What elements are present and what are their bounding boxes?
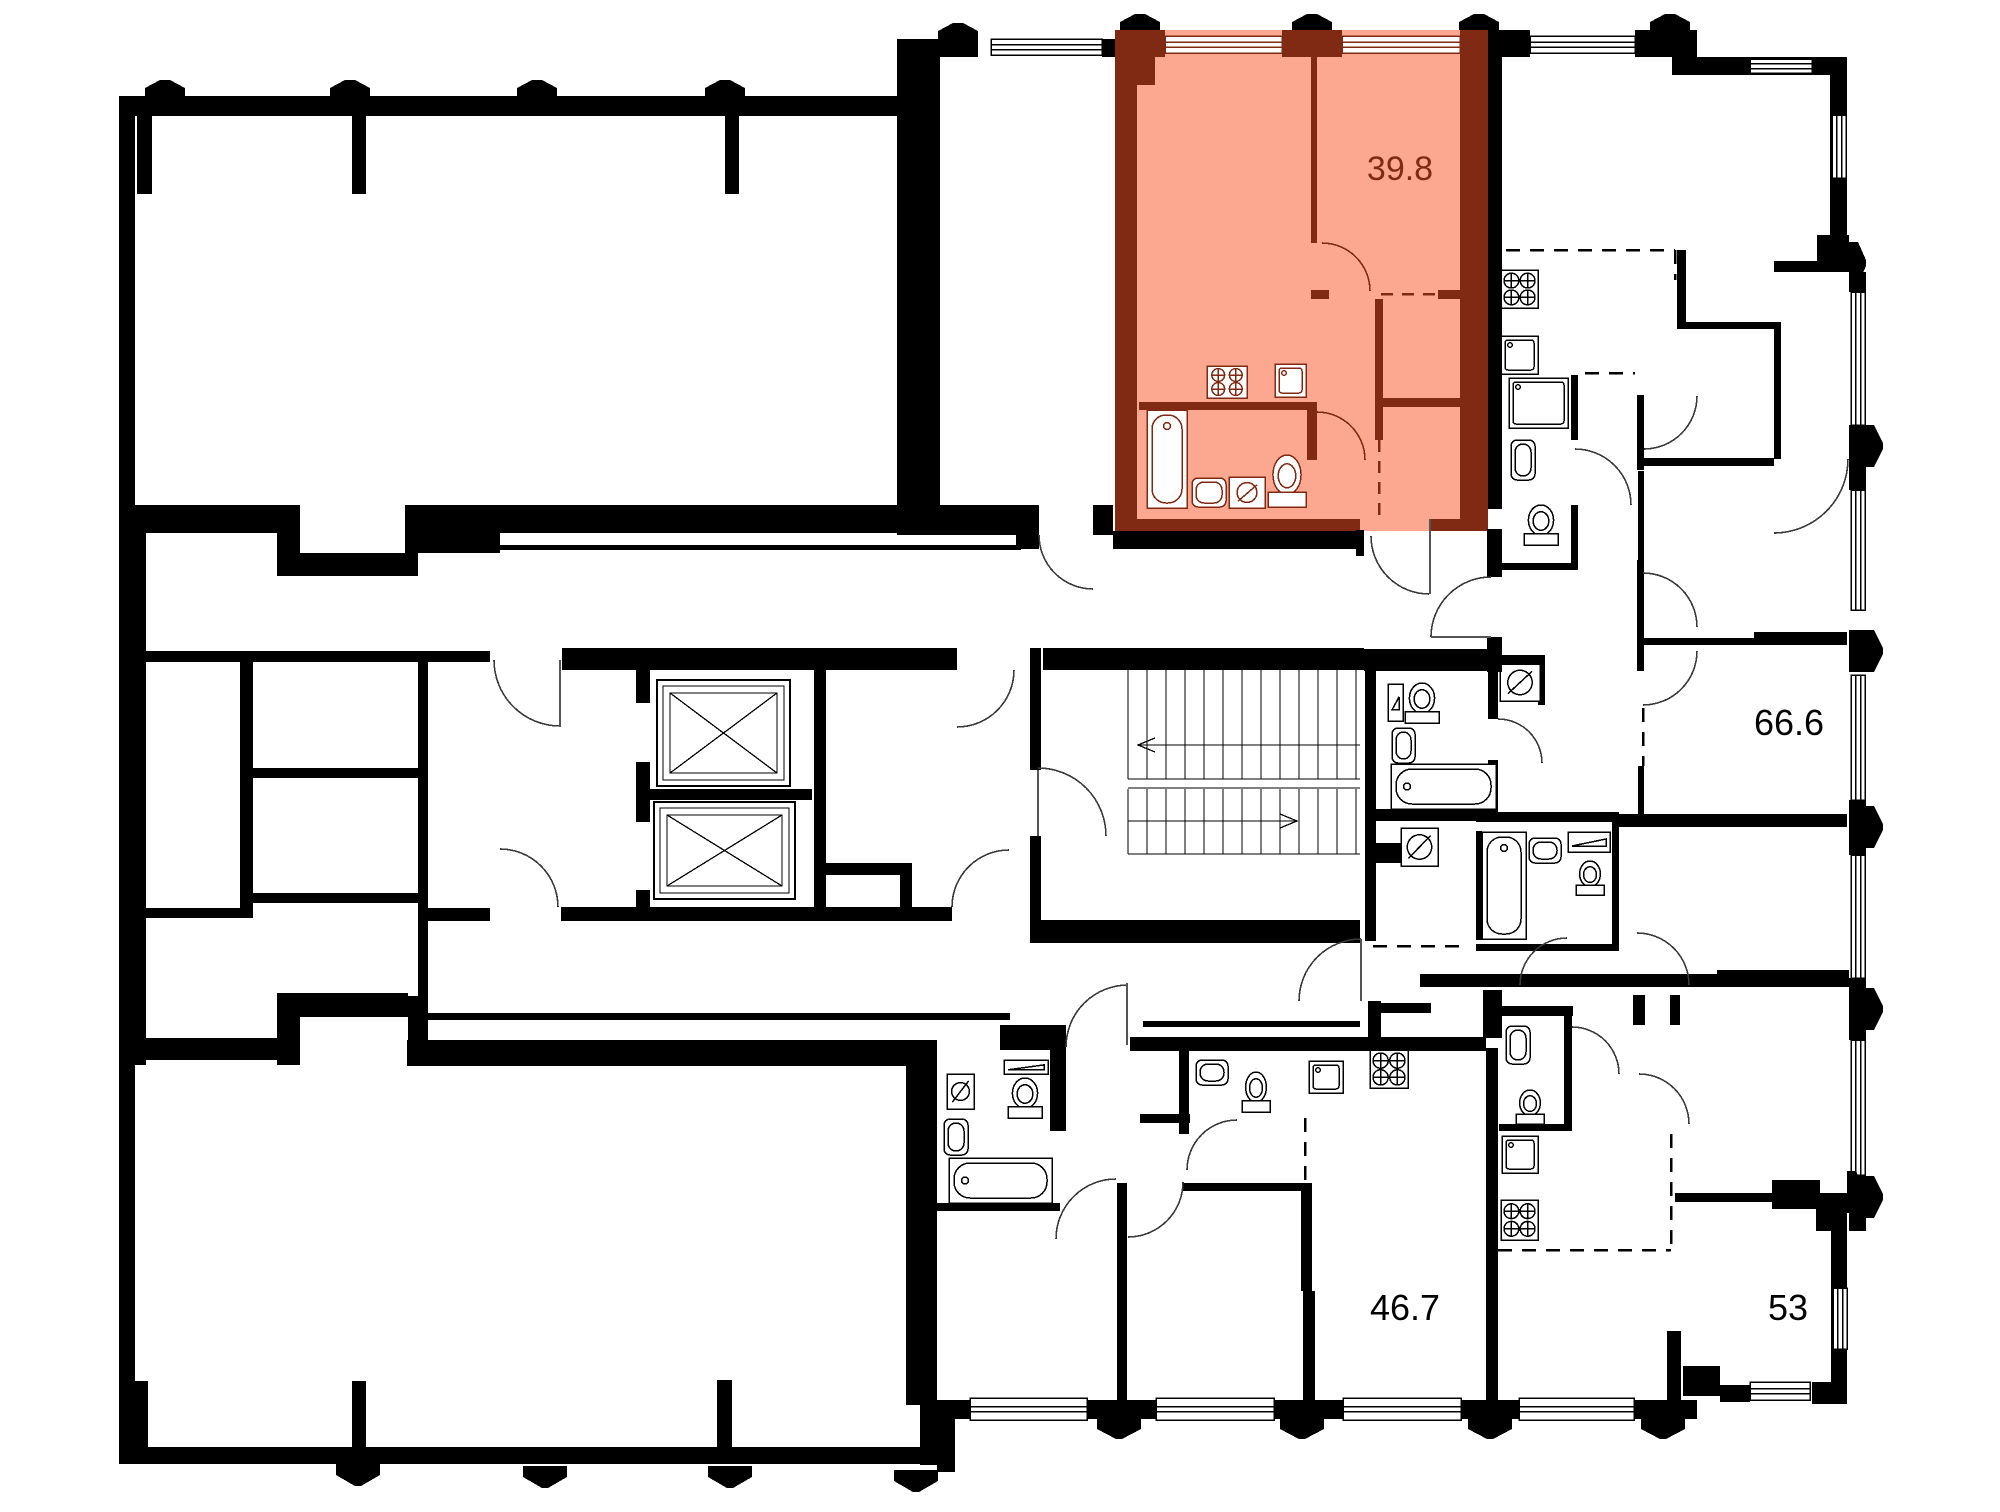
- svg-text:39.8: 39.8: [1367, 150, 1433, 188]
- svg-text:66.6: 66.6: [1754, 702, 1824, 743]
- svg-text:46.7: 46.7: [1370, 1287, 1440, 1328]
- svg-text:53: 53: [1768, 1287, 1808, 1328]
